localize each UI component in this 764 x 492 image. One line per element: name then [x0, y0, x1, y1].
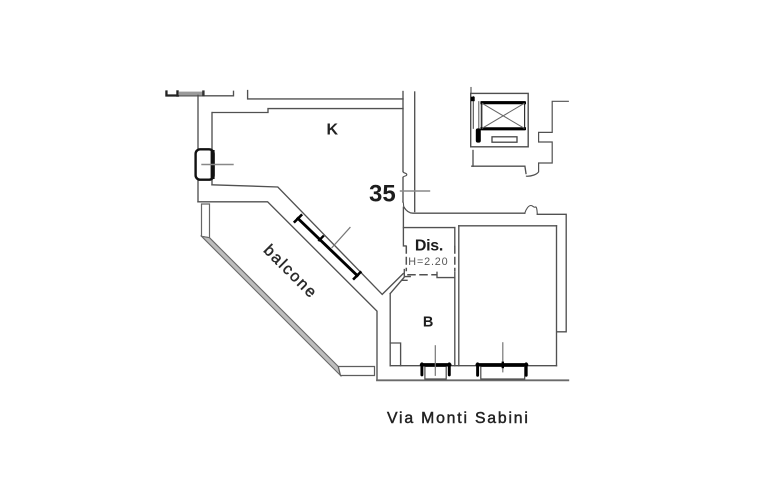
svg-text:K: K — [327, 121, 339, 138]
svg-text:H=2.20: H=2.20 — [408, 256, 448, 268]
svg-text:B: B — [423, 314, 433, 330]
svg-text:Via Monti Sabini: Via Monti Sabini — [387, 410, 530, 427]
svg-text:Dis.: Dis. — [415, 237, 443, 254]
svg-text:35: 35 — [369, 181, 396, 208]
